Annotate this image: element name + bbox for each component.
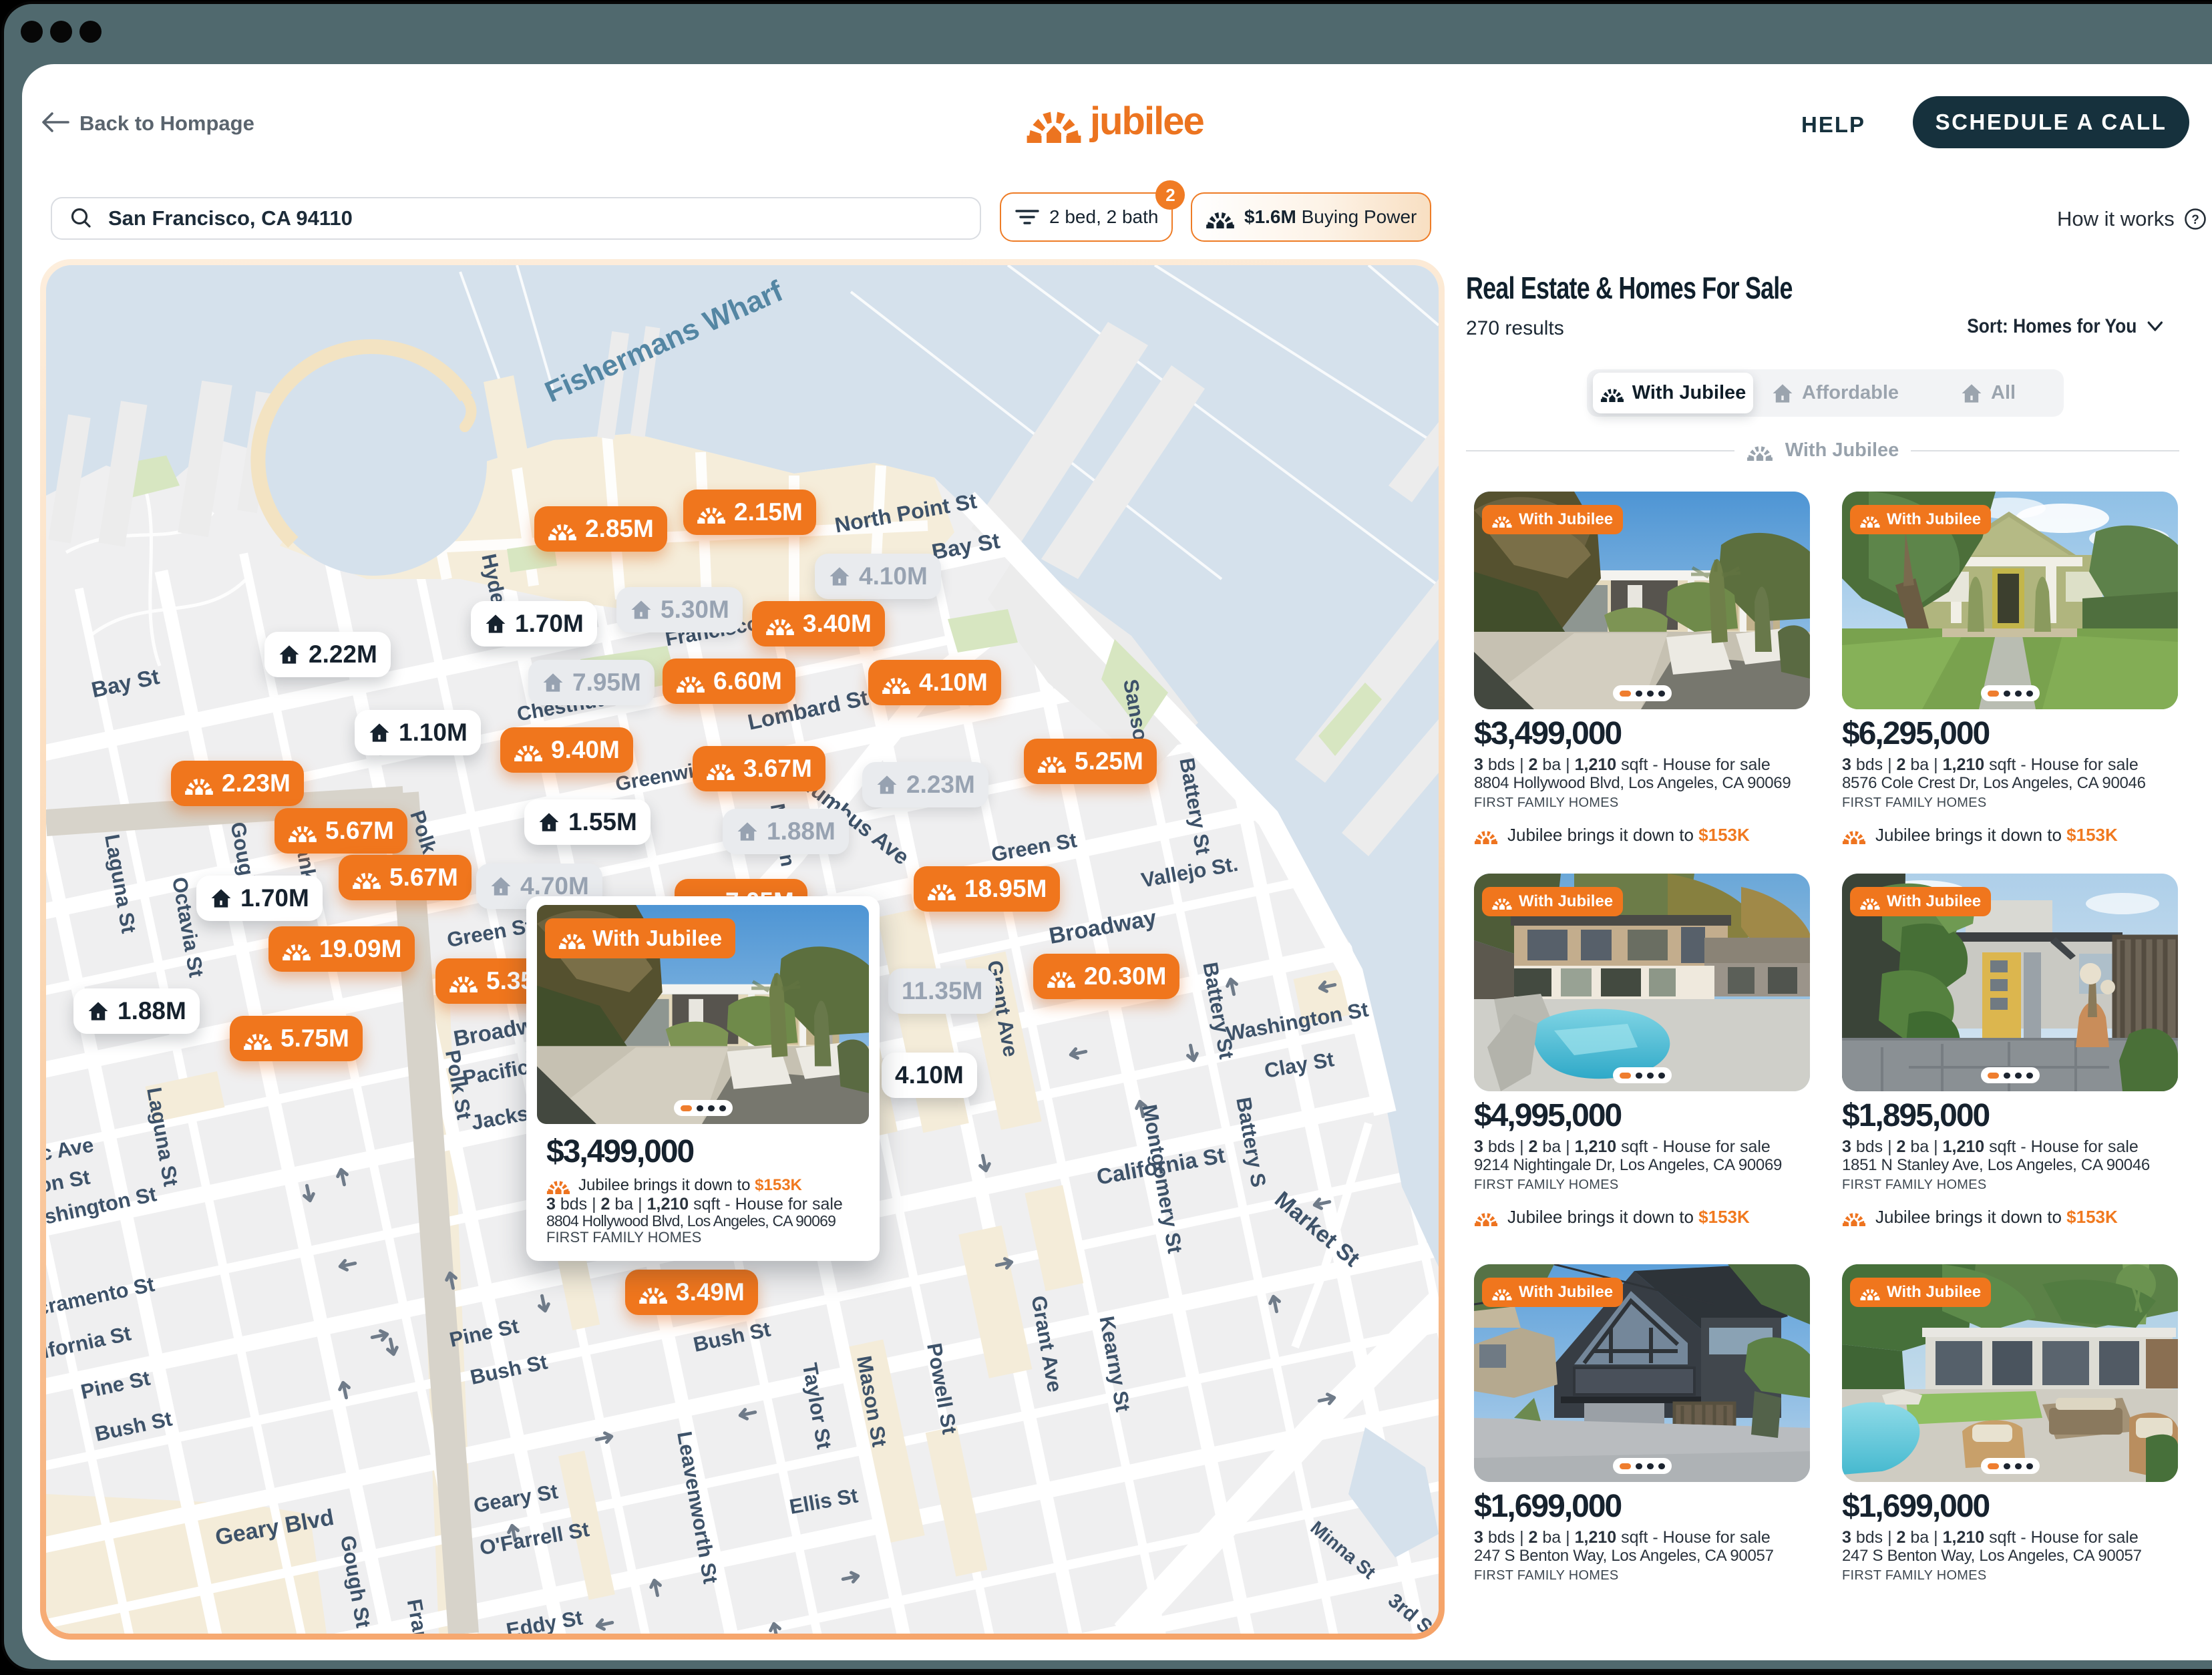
svg-text:?: ? xyxy=(2191,213,2199,227)
